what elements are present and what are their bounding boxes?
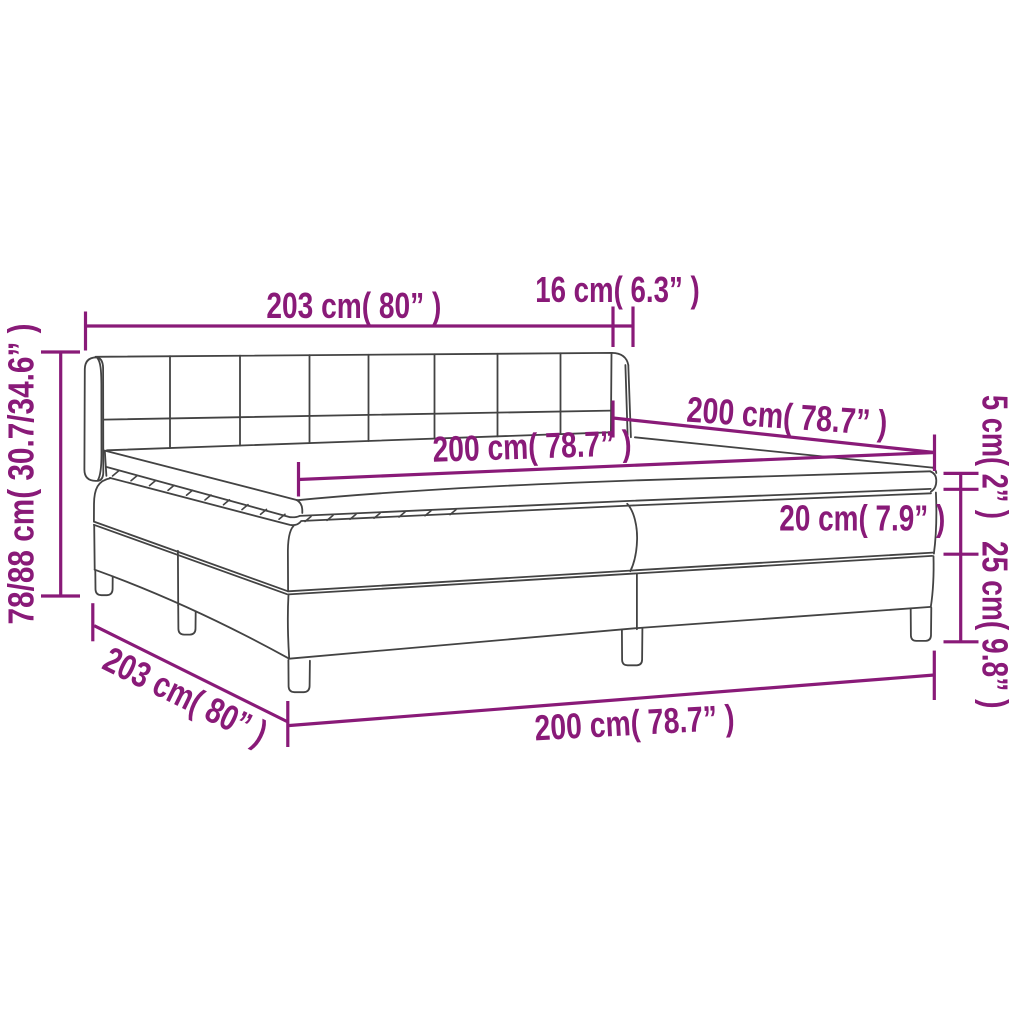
svg-text:78/88 cm( 30.7/34.6” ): 78/88 cm( 30.7/34.6” ) (1, 324, 42, 625)
svg-text:203 cm( 80” ): 203 cm( 80” ) (266, 285, 441, 326)
svg-text:20 cm( 7.9” ): 20 cm( 7.9” ) (779, 497, 945, 538)
svg-text:16 cm( 6.3” ): 16 cm( 6.3” ) (535, 269, 700, 310)
svg-text:5 cm( 2” ): 5 cm( 2” ) (975, 395, 1016, 519)
svg-text:200 cm( 78.7” ): 200 cm( 78.7” ) (432, 422, 632, 470)
svg-text:25 cm( 9.8” ): 25 cm( 9.8” ) (975, 541, 1016, 709)
